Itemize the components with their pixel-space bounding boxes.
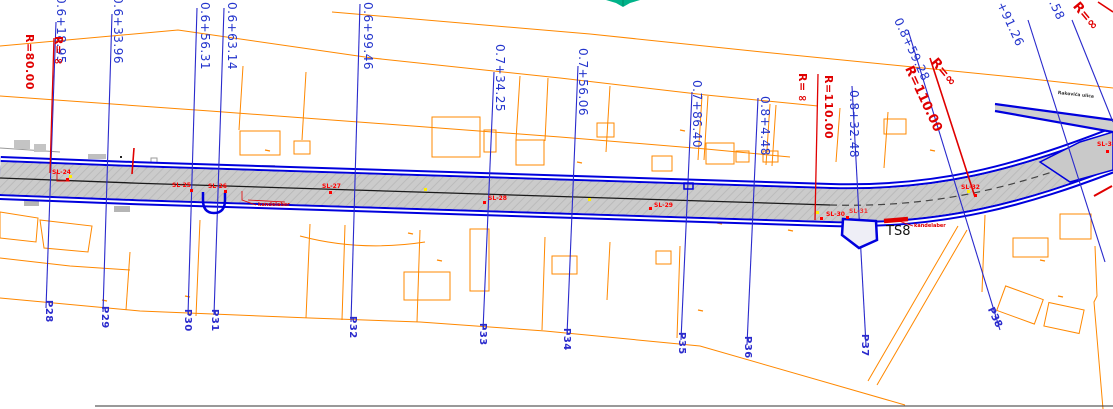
road-plan-canvas: 0.6+18.95 0.6+33.96 0.6+56.31 0.6+63.14 … bbox=[0, 0, 1113, 409]
section-point-label: P30 bbox=[182, 309, 192, 332]
radius-label: R=110.00 bbox=[823, 75, 834, 139]
section-point-label: P33 bbox=[477, 323, 487, 346]
sl-point-label: SL-26 bbox=[208, 184, 227, 190]
radius-label: R=∞ bbox=[53, 36, 64, 68]
section-point-label: P37 bbox=[859, 334, 869, 357]
sl-point-label: SL-25 bbox=[172, 183, 191, 189]
chainage-label: 0.8+32.48 bbox=[848, 90, 860, 158]
radius-label: R=80.00 bbox=[24, 34, 35, 90]
section-point-label: P32 bbox=[347, 316, 357, 339]
transformer-station-label: TS8 bbox=[886, 225, 910, 238]
section-point-label: P29 bbox=[99, 306, 109, 329]
sl-point-label: SL-29 bbox=[654, 203, 673, 209]
kandelaber-label: kandelaber bbox=[914, 224, 946, 229]
radius-label: R=∞ bbox=[797, 73, 808, 105]
chainage-label: 0.7+56.06 bbox=[577, 48, 589, 116]
chainage-label: 0.6+63.14 bbox=[226, 2, 238, 70]
section-point-label: P34 bbox=[561, 328, 571, 351]
chainage-label: 0.6+33.96 bbox=[112, 0, 124, 64]
bay-ts8 bbox=[842, 219, 877, 248]
main-road bbox=[0, 150, 1113, 205]
sl-point-label: SL-27 bbox=[322, 184, 341, 190]
sl-point-label: SL-28 bbox=[488, 196, 507, 202]
sl-point-label: SL-31 bbox=[849, 209, 868, 215]
chainage-label: 0.8+4.48 bbox=[759, 96, 771, 156]
plan-drawing bbox=[0, 0, 1113, 409]
green-marker-icon bbox=[606, 0, 640, 7]
chainage-label: 0.7+86.40 bbox=[691, 80, 703, 148]
chainage-label: 0.7+34.25 bbox=[494, 44, 506, 112]
section-point-label: P31 bbox=[209, 309, 219, 332]
chainage-label: 0.6+56.31 bbox=[199, 2, 211, 70]
sl-point-label: SL-30 bbox=[826, 212, 845, 218]
section-point-label: P35 bbox=[676, 332, 686, 355]
sl-point-label: SL-33 bbox=[1097, 142, 1113, 148]
sl-point-label: SL-24 bbox=[52, 170, 71, 176]
chainage-label: 0.6+99.46 bbox=[362, 2, 374, 70]
section-point-label: P36 bbox=[742, 336, 752, 359]
sl-point-label: SL-32 bbox=[961, 185, 980, 191]
section-point-label: P28 bbox=[43, 300, 53, 323]
kandelaber-label: kandelaber bbox=[258, 203, 290, 208]
